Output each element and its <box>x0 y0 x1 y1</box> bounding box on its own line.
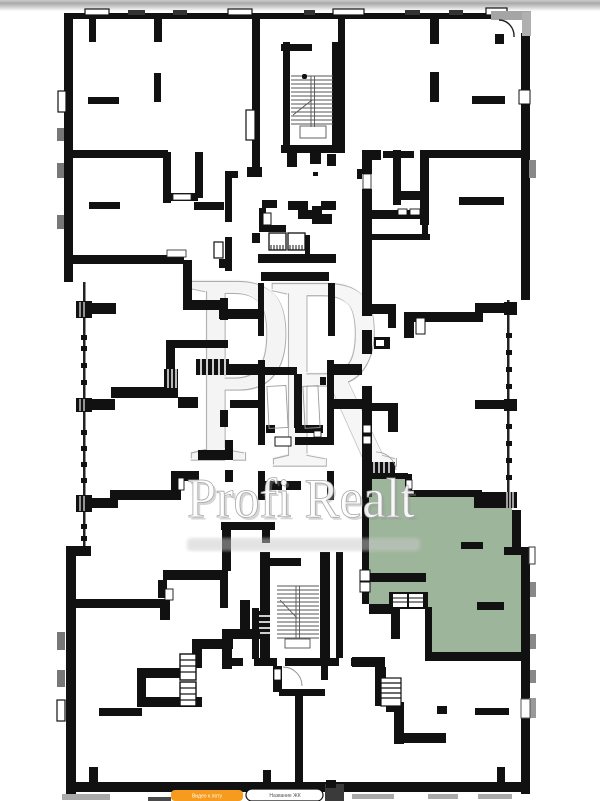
svg-text:Название ЖК: Название ЖК <box>269 793 300 799</box>
svg-text:Видео к лоту: Видео к лоту <box>192 794 223 800</box>
svg-text:Profi Realt: Profi Realt <box>187 467 415 529</box>
